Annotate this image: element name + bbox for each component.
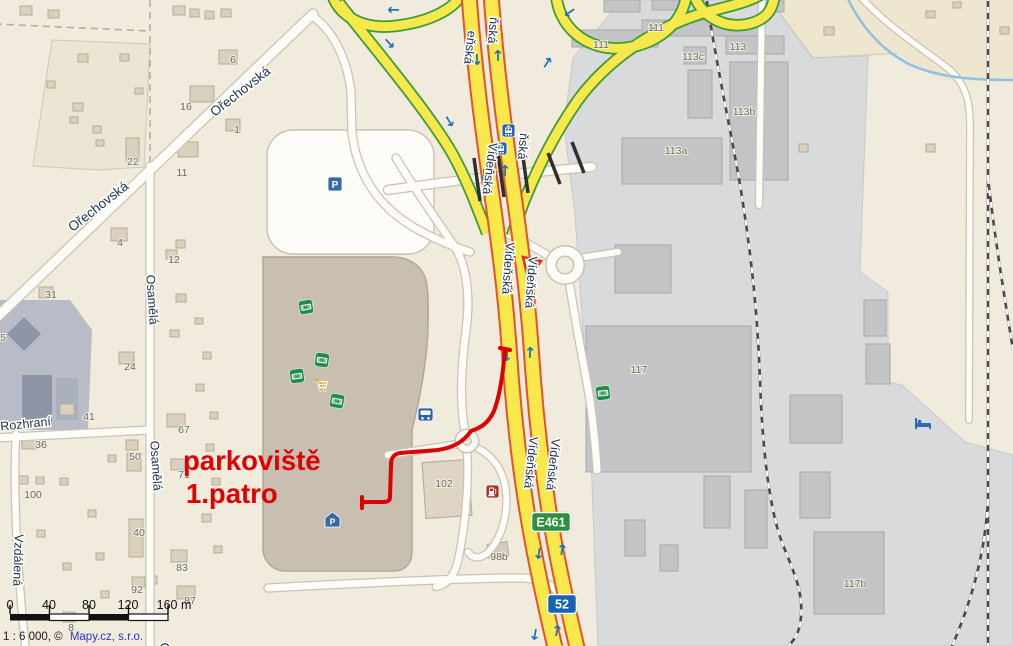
building-number: 1: [234, 124, 240, 136]
building: [48, 10, 59, 18]
building-number: 92: [131, 584, 143, 596]
street-label: ňská: [515, 133, 531, 161]
direction-arrow-icon: ↑: [555, 540, 570, 560]
building: [173, 6, 185, 15]
building: [800, 472, 830, 518]
building-number: 36: [35, 439, 47, 451]
building: [96, 553, 104, 560]
building: [120, 54, 129, 61]
building-number: 102: [435, 478, 453, 490]
scale-ratio-text: 1 : 6 000, ©: [3, 631, 63, 643]
building-number: 4: [117, 237, 123, 249]
building-number: 67: [178, 424, 190, 436]
building-number: 113b: [733, 106, 756, 118]
building: [926, 144, 935, 152]
building-number: 11: [177, 167, 188, 179]
building-number: 113c: [682, 51, 704, 63]
atm-icon[interactable]: 50: [314, 352, 330, 368]
svg-text:P: P: [332, 180, 339, 191]
street-label: Osamělá: [157, 642, 174, 646]
building: [195, 318, 203, 324]
map-attribution: 1 : 6 000, © Mapy.cz, s.r.o.: [3, 631, 143, 643]
building: [101, 591, 109, 598]
atm-icon[interactable]: 50: [329, 393, 345, 409]
building: [20, 6, 32, 15]
building-number: 31: [45, 289, 57, 301]
building: [63, 563, 71, 570]
building: [660, 545, 678, 571]
direction-arrow-icon: ↑: [499, 162, 512, 180]
building: [73, 103, 83, 111]
building: [864, 300, 886, 336]
mall-building: [263, 257, 428, 571]
building: [704, 476, 730, 528]
building-number: 117: [631, 364, 648, 376]
building: [126, 440, 138, 450]
route-shield-52: 52: [547, 594, 578, 615]
street-label: Vzdálená: [10, 534, 26, 587]
building: [625, 520, 645, 556]
building: [210, 412, 218, 419]
atm-icon[interactable]: 50: [595, 385, 610, 400]
building: [190, 86, 214, 102]
scale-label: 160 m: [157, 598, 192, 612]
building: [814, 532, 884, 614]
building-number: 111: [648, 22, 664, 34]
building: [586, 326, 751, 472]
building: [202, 514, 211, 522]
atm-icon[interactable]: 50: [298, 299, 314, 315]
building: [171, 550, 187, 562]
building: [799, 144, 808, 152]
building: [96, 140, 104, 146]
building: [170, 330, 179, 337]
building-number: 12: [168, 254, 180, 266]
building: [203, 352, 211, 359]
building: [615, 245, 671, 293]
parking-icon[interactable]: P: [328, 177, 342, 191]
building-number: 50: [129, 451, 141, 463]
building: [214, 546, 222, 553]
svg-text:P: P: [330, 517, 336, 527]
building-number: 24: [124, 361, 136, 373]
building: [790, 395, 842, 443]
building: [953, 2, 961, 8]
building-number: 117b: [844, 578, 867, 590]
building: [196, 384, 204, 391]
building: [190, 9, 199, 17]
bus-stop-icon[interactable]: [418, 408, 433, 421]
building-number: 100: [24, 489, 42, 501]
building: [60, 478, 68, 485]
building: [824, 27, 834, 35]
scale-label: 80: [82, 598, 96, 612]
building-number: 113a: [665, 145, 688, 157]
map-canvas[interactable]: ↑↑↑↑↑↑↑↑↑↑↑↑↑↑↑ PP5050505050 OřechovskáO…: [0, 0, 1013, 646]
building: [176, 294, 186, 302]
scale-label: 0: [7, 598, 14, 612]
building: [93, 126, 101, 133]
building-number: 6: [230, 54, 236, 66]
building: [688, 70, 712, 118]
building: [745, 490, 767, 548]
tram-stop-icon[interactable]: [502, 124, 515, 137]
building-number: 40: [133, 527, 145, 539]
scale-label: 120: [118, 598, 139, 612]
road: [759, 0, 762, 205]
svg-text:52: 52: [555, 598, 569, 612]
mapycz-link[interactable]: Mapy.cz, s.r.o.: [70, 631, 143, 643]
building-number: 41: [83, 411, 95, 423]
building: [926, 11, 935, 18]
building: [47, 81, 55, 88]
building-number: 16: [180, 101, 192, 113]
building-number: 22: [127, 156, 139, 168]
building-number: 5: [0, 332, 6, 344]
building: [135, 88, 143, 94]
building-number: 111: [593, 39, 609, 51]
building: [604, 0, 640, 12]
building-number: 98b: [490, 551, 508, 563]
building: [18, 476, 28, 484]
direction-arrow-icon: ↑: [532, 543, 547, 563]
map-viewport[interactable]: ↑↑↑↑↑↑↑↑↑↑↑↑↑↑↑ PP5050505050 OřechovskáO…: [0, 0, 1013, 646]
direction-arrow-icon: ↑: [385, 4, 403, 17]
annotation-line2: 1.patro: [186, 478, 278, 509]
building-number: 113: [730, 41, 747, 53]
direction-arrow-icon: ↑: [491, 47, 504, 65]
building: [36, 477, 44, 484]
building: [176, 240, 185, 248]
building: [1000, 27, 1009, 34]
building: [108, 455, 116, 462]
annotation-line1: parkoviště: [183, 445, 321, 476]
route-shield-E461: E461: [531, 512, 572, 533]
building: [652, 0, 680, 10]
building: [78, 54, 88, 62]
svg-text:E461: E461: [536, 516, 565, 530]
scale-label: 40: [42, 598, 56, 612]
atm-icon[interactable]: 50: [289, 368, 305, 384]
street-label: ňská: [485, 17, 501, 45]
building: [88, 510, 96, 517]
direction-arrow-icon: ↑: [523, 344, 537, 363]
building: [205, 11, 214, 19]
building: [37, 530, 45, 537]
building: [60, 404, 74, 415]
fuel-station-icon[interactable]: [486, 485, 499, 498]
building: [221, 9, 231, 17]
building: [70, 117, 78, 123]
building-number: 83: [176, 562, 188, 574]
building: [866, 344, 890, 384]
